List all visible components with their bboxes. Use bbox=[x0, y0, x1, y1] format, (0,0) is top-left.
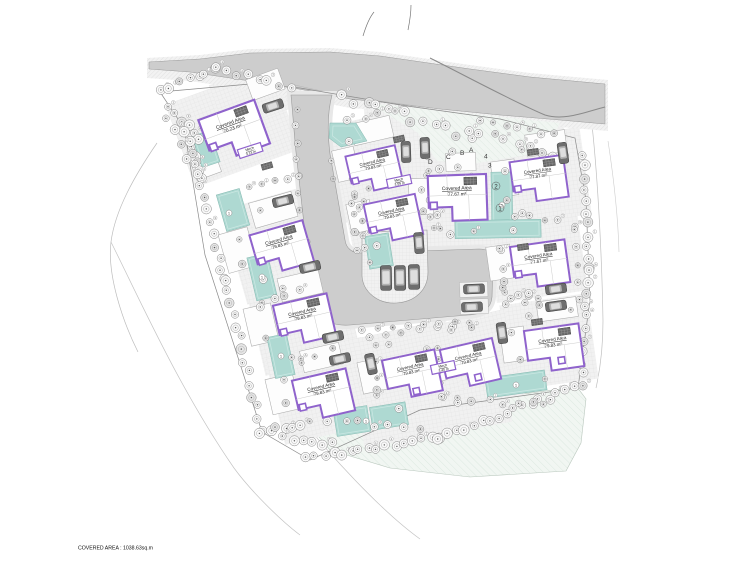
svg-text:A: A bbox=[399, 105, 401, 109]
svg-text:77.67 m²: 77.67 m² bbox=[448, 191, 467, 197]
svg-text:A: A bbox=[469, 147, 474, 154]
svg-text:4: 4 bbox=[484, 154, 488, 161]
svg-text:A: A bbox=[591, 308, 593, 312]
svg-text:A: A bbox=[595, 262, 597, 266]
svg-text:A: A bbox=[508, 132, 510, 136]
svg-text:C: C bbox=[446, 154, 451, 161]
svg-text:A: A bbox=[305, 353, 307, 357]
svg-text:COVERED AREA : 1038.63sq.m: COVERED AREA : 1038.63sq.m bbox=[78, 546, 153, 552]
svg-text:A: A bbox=[522, 121, 524, 125]
svg-text:A: A bbox=[202, 155, 204, 159]
svg-text:A: A bbox=[590, 299, 592, 303]
svg-text:B: B bbox=[460, 150, 464, 157]
svg-text:D: D bbox=[428, 159, 433, 166]
svg-text:3: 3 bbox=[488, 163, 492, 170]
